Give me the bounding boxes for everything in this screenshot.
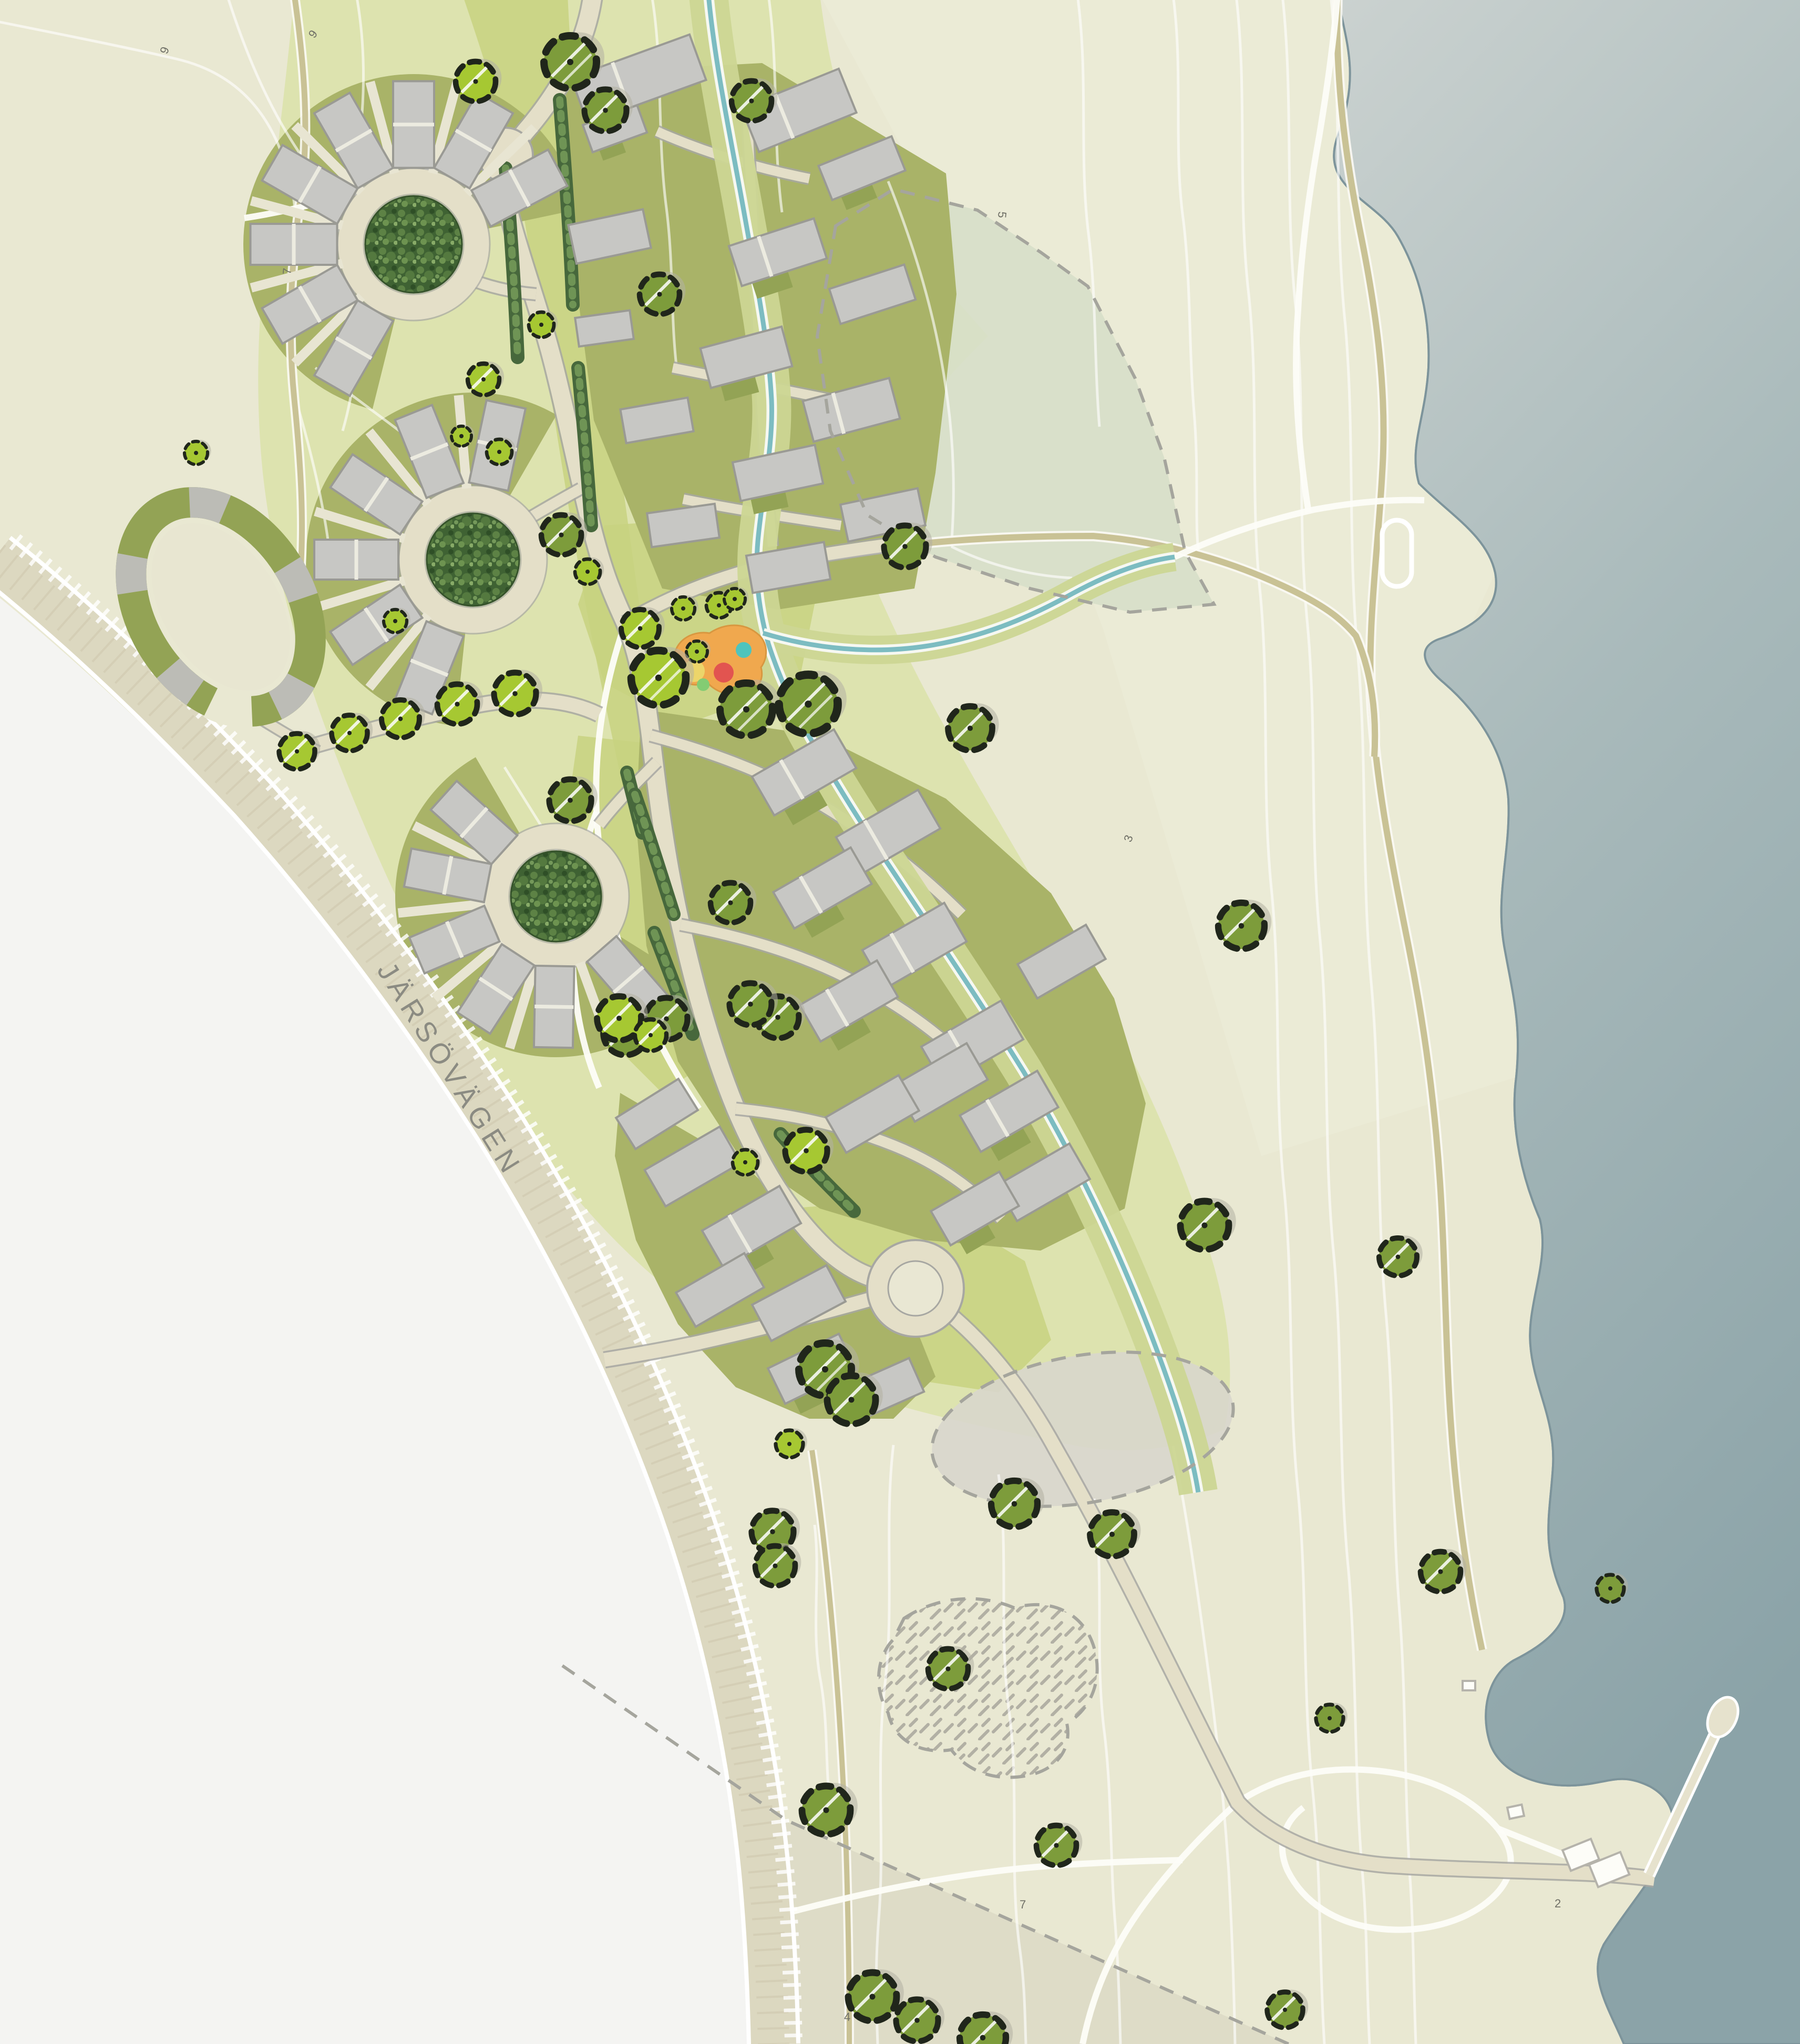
tree-trunk-dot bbox=[770, 1529, 775, 1534]
tree-trunk-dot bbox=[869, 1994, 875, 1999]
tree-trunk-dot bbox=[945, 1666, 950, 1671]
building bbox=[575, 310, 634, 346]
tree-trunk-dot bbox=[743, 706, 749, 713]
tree-trunk-dot bbox=[773, 1563, 777, 1568]
tree-trunk-dot bbox=[568, 798, 573, 803]
tree-trunk-dot bbox=[459, 434, 464, 438]
fan-building bbox=[534, 966, 574, 1048]
tree-trunk-dot bbox=[1283, 2008, 1287, 2012]
tree-trunk-dot bbox=[1201, 1222, 1207, 1228]
tree-trunk-dot bbox=[1396, 1255, 1401, 1260]
tree-trunk-dot bbox=[655, 675, 662, 681]
building-gap bbox=[534, 1006, 573, 1007]
tree-trunk-dot bbox=[567, 59, 573, 65]
tree-trunk-dot bbox=[398, 717, 403, 721]
tree-trunk-dot bbox=[1608, 1586, 1612, 1591]
tree-trunk-dot bbox=[585, 570, 590, 574]
site-plan-map: 99753742 JÄRSÖVÄGEN bbox=[0, 0, 1800, 2044]
tree-trunk-dot bbox=[733, 597, 737, 601]
fan-building bbox=[314, 540, 398, 580]
tree-trunk-dot bbox=[804, 1148, 809, 1153]
tree-trunk-dot bbox=[1239, 923, 1244, 929]
contour-elevation-label: 2 bbox=[1555, 1897, 1561, 1910]
fan-forest-core bbox=[427, 513, 519, 606]
tree-trunk-dot bbox=[775, 1015, 780, 1020]
contour-elevation-label: 7 bbox=[1020, 1898, 1026, 1911]
site-plan-svg: 99753742 JÄRSÖVÄGEN bbox=[0, 0, 1800, 2044]
tree-trunk-dot bbox=[539, 323, 543, 327]
tree-trunk-dot bbox=[980, 2035, 986, 2041]
tree-trunk-dot bbox=[481, 377, 486, 381]
tree-trunk-dot bbox=[743, 1160, 747, 1164]
tree-trunk-dot bbox=[393, 619, 397, 623]
tree-trunk-dot bbox=[657, 292, 662, 296]
tree-trunk-dot bbox=[1054, 1843, 1058, 1847]
tree-trunk-dot bbox=[638, 626, 643, 631]
tree-trunk-dot bbox=[787, 1442, 791, 1446]
tree-trunk-dot bbox=[717, 603, 721, 607]
tree-trunk-dot bbox=[749, 98, 754, 103]
tree-trunk-dot bbox=[823, 1807, 829, 1813]
tree-trunk-dot bbox=[728, 900, 733, 905]
tree-trunk-dot bbox=[497, 450, 501, 454]
tree-trunk-dot bbox=[649, 1033, 653, 1037]
tree-trunk-dot bbox=[295, 749, 299, 753]
tree-trunk-dot bbox=[603, 108, 608, 113]
tree-trunk-dot bbox=[968, 726, 973, 731]
tree-trunk-dot bbox=[473, 79, 478, 84]
tree-trunk-dot bbox=[512, 691, 518, 696]
contour-elevation-label: 4 bbox=[844, 2010, 850, 2024]
tree-trunk-dot bbox=[848, 1397, 854, 1402]
tree-trunk-dot bbox=[914, 2018, 920, 2023]
contour-elevation-label: 7 bbox=[280, 267, 294, 275]
tree-trunk-dot bbox=[347, 731, 352, 735]
tree-trunk-dot bbox=[681, 606, 685, 611]
shore-building bbox=[1463, 1681, 1475, 1690]
shore-building bbox=[1507, 1804, 1524, 1819]
fan-forest-core bbox=[511, 851, 601, 942]
map-layers: 99753742 bbox=[0, 0, 1800, 2044]
fan-forest-core bbox=[365, 196, 462, 293]
fan-building bbox=[393, 81, 434, 168]
tree-trunk-dot bbox=[695, 649, 699, 654]
tree-trunk-dot bbox=[902, 544, 908, 549]
tree-trunk-dot bbox=[748, 1002, 753, 1007]
tree-trunk-dot bbox=[616, 1016, 622, 1021]
building-footprint bbox=[575, 310, 634, 346]
tree-trunk-dot bbox=[1438, 1569, 1443, 1574]
tree-trunk-dot bbox=[194, 451, 198, 455]
playground-green-circle bbox=[697, 678, 709, 691]
tree-trunk-dot bbox=[822, 1366, 828, 1372]
playground-red-circle bbox=[714, 663, 734, 683]
tree-trunk-dot bbox=[559, 532, 563, 537]
roundabout-island bbox=[888, 1261, 943, 1316]
tree-trunk-dot bbox=[1328, 1716, 1332, 1720]
tree-trunk-dot bbox=[1012, 1501, 1017, 1507]
fan-building bbox=[251, 224, 337, 265]
tree-trunk-dot bbox=[1109, 1532, 1115, 1537]
tree-trunk-dot bbox=[455, 701, 459, 706]
tree-trunk-dot bbox=[805, 700, 811, 707]
playground-teal-circle bbox=[736, 642, 752, 658]
contour-elevation-label: 5 bbox=[995, 211, 1009, 219]
